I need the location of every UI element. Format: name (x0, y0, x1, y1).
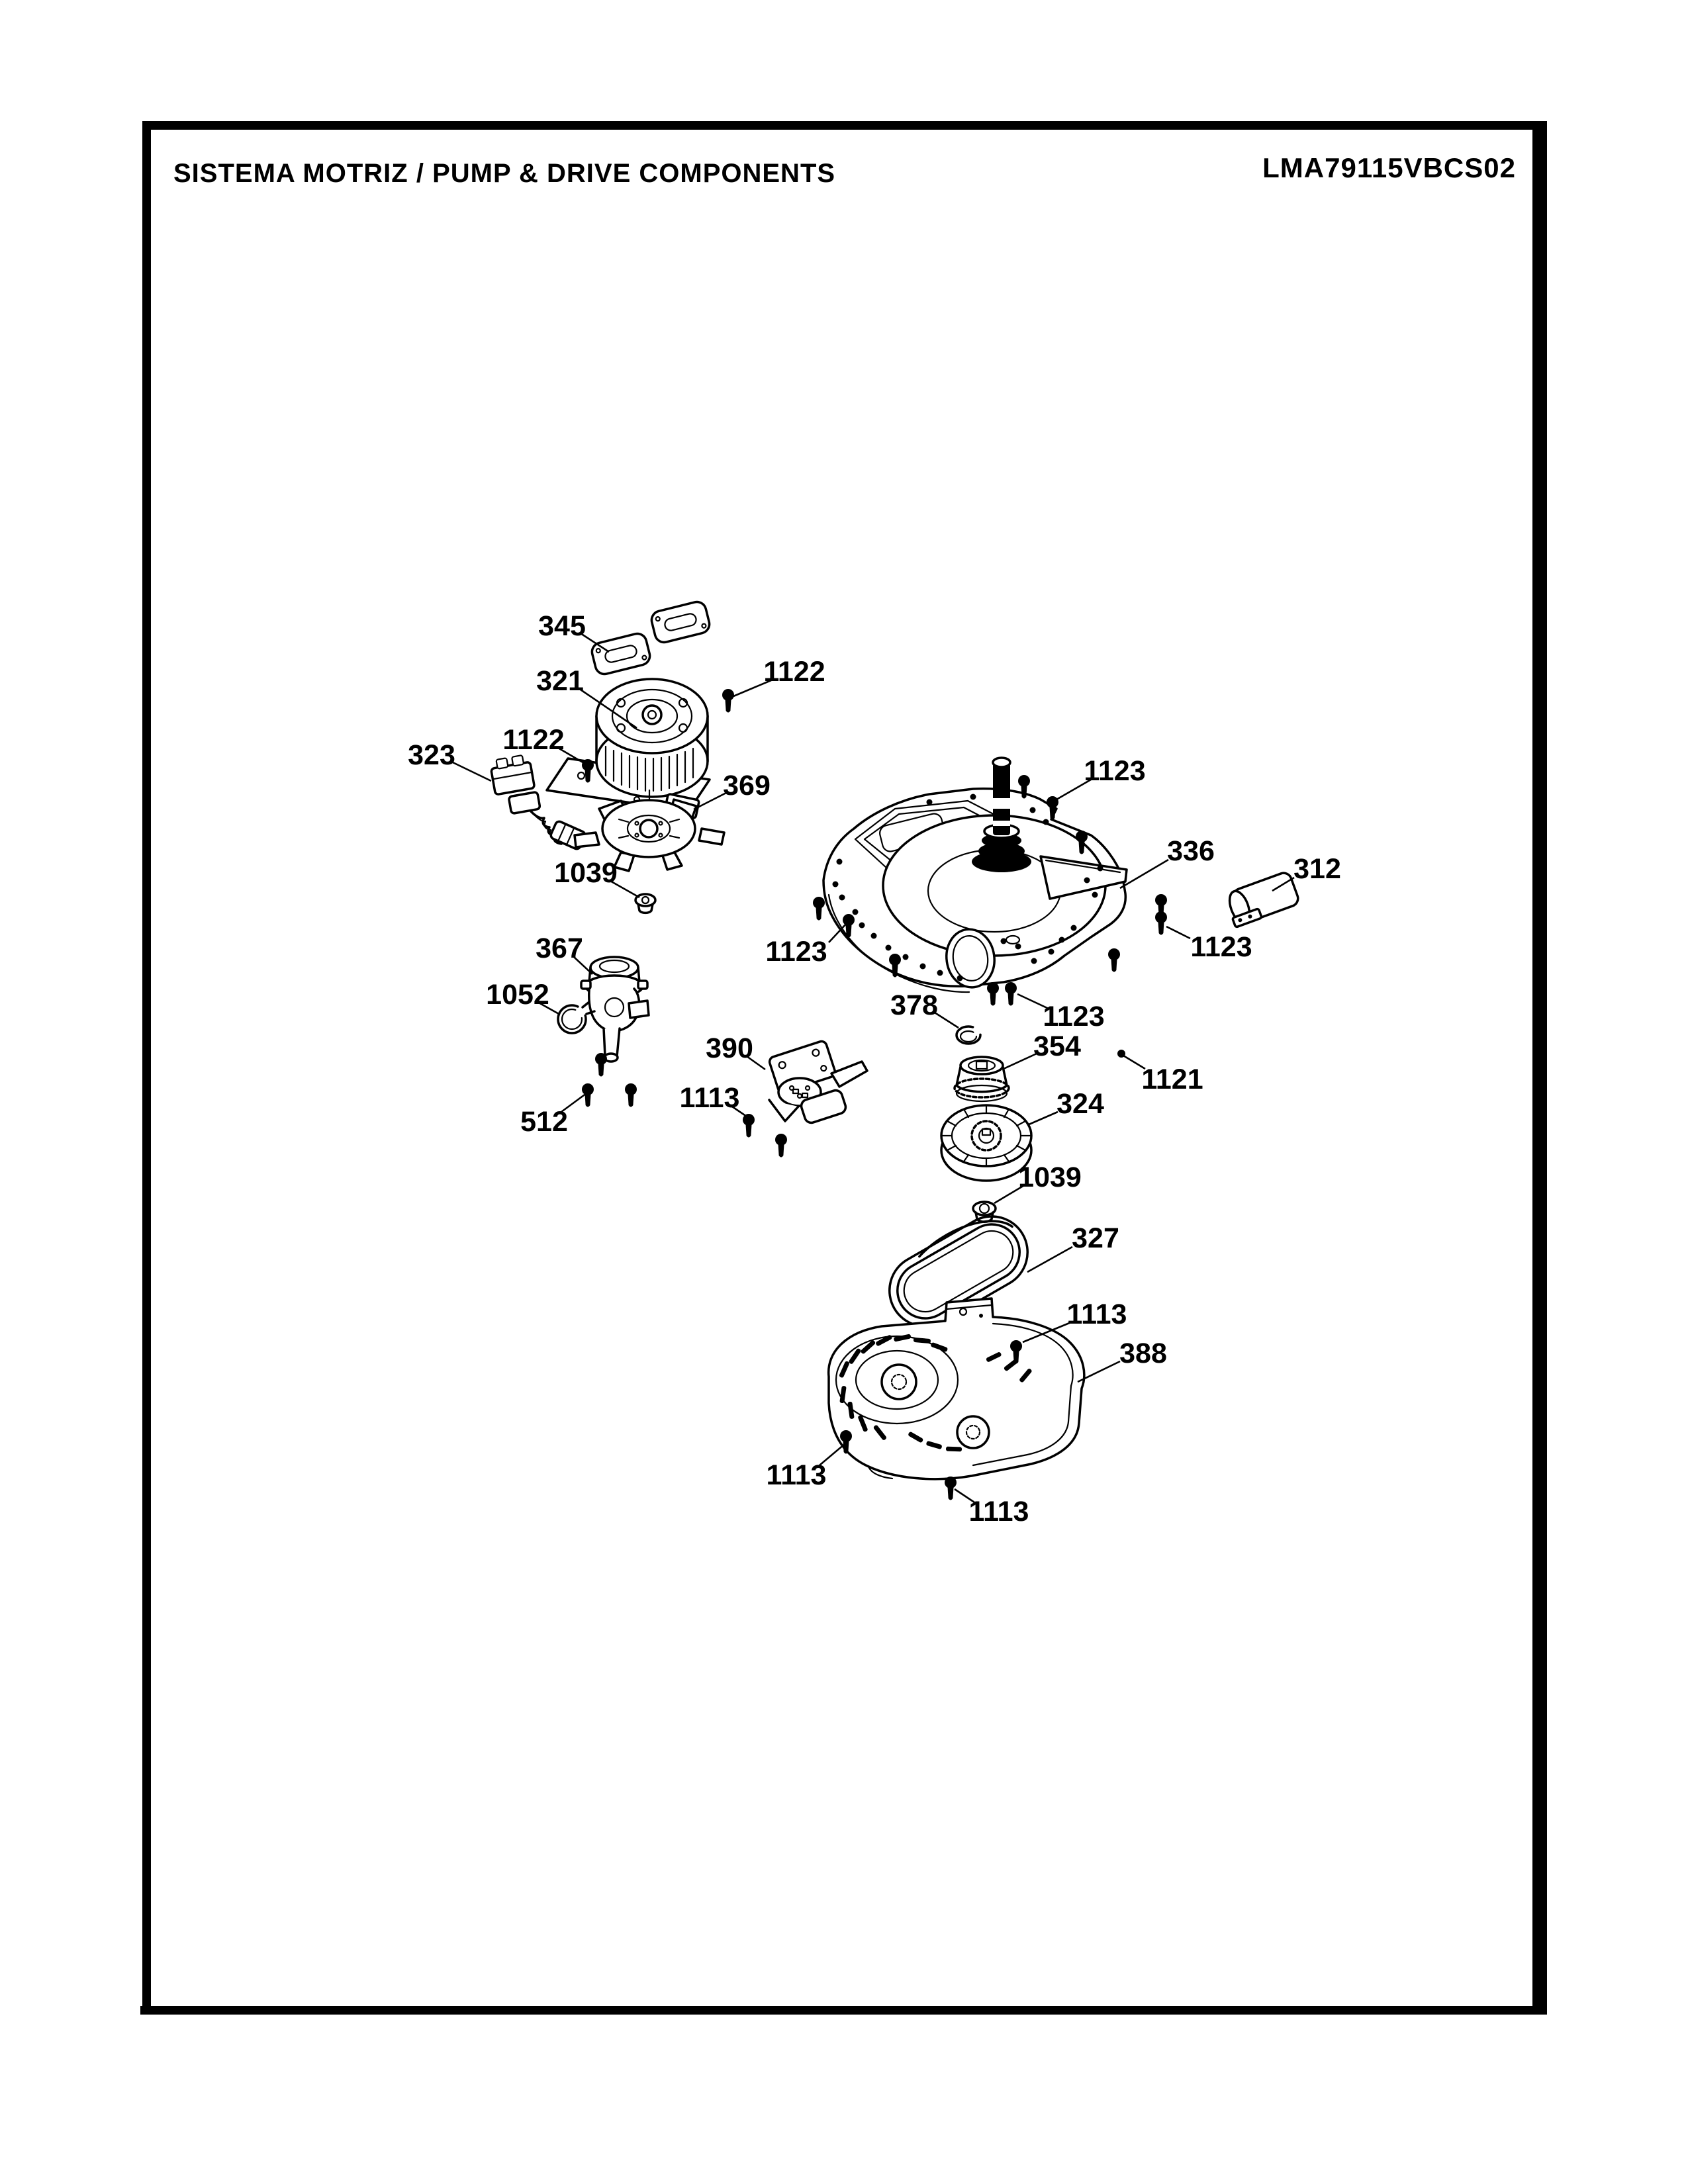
capacitor (1224, 871, 1301, 927)
screw-icon (1005, 982, 1017, 1006)
callout-1052: 1052 (486, 979, 549, 1011)
callout-1113-shifter: 1113 (680, 1082, 740, 1114)
callout-388: 388 (1119, 1338, 1167, 1369)
screw-icon (775, 1134, 787, 1158)
screw-icon (722, 689, 734, 713)
drive-motor (547, 679, 710, 819)
page-title: SISTEMA MOTRIZ / PUMP & DRIVE COMPONENTS (173, 159, 835, 188)
callout-1122-right: 1122 (763, 656, 825, 688)
shifter-arm (831, 1062, 867, 1087)
callout-323: 323 (408, 739, 455, 771)
motor-gasket-pair (590, 600, 711, 676)
screw-icon (595, 1053, 607, 1077)
callout-1113-bottom-left: 1113 (767, 1459, 827, 1491)
diagram-canvas: SISTEMA MOTRIZ / PUMP & DRIVE COMPONENTS… (0, 0, 1688, 2184)
callout-1122-left: 1122 (502, 724, 564, 756)
screw-icon (987, 982, 999, 1006)
callout-367: 367 (536, 933, 583, 964)
callout-1121: 1121 (1141, 1064, 1203, 1095)
model-number: LMA79115VBCS02 (1262, 152, 1516, 183)
transmission-platform (823, 758, 1127, 992)
screw-icon (625, 1083, 637, 1107)
callout-345: 345 (538, 610, 586, 642)
bottom-cover (829, 1298, 1084, 1479)
pump-outlet (629, 1001, 649, 1018)
callout-1113-bottom-right: 1113 (969, 1496, 1029, 1527)
screw-icon (1155, 911, 1167, 935)
callout-1123-top: 1123 (1084, 755, 1145, 787)
callout-1113-belt: 1113 (1067, 1298, 1127, 1330)
callout-336: 336 (1167, 835, 1215, 867)
callout-512: 512 (520, 1106, 568, 1138)
callout-327: 327 (1072, 1222, 1119, 1254)
callout-1039-lower: 1039 (1018, 1161, 1082, 1193)
parts-diagram-page: SISTEMA MOTRIZ / PUMP & DRIVE COMPONENTS… (0, 0, 1688, 2184)
pump-tube (604, 1028, 620, 1056)
callout-378: 378 (890, 989, 938, 1021)
callout-312: 312 (1293, 853, 1341, 885)
screw-icon (945, 1477, 957, 1500)
shifter-assembly (769, 1040, 867, 1124)
snap-ring (957, 1026, 980, 1044)
callout-1123-bottom: 1123 (1043, 1001, 1104, 1032)
screw-icon (813, 897, 825, 921)
callout-1123-left: 1123 (765, 936, 827, 968)
callout-390: 390 (706, 1032, 753, 1064)
callout-354: 354 (1033, 1030, 1081, 1062)
screw-icon (1108, 948, 1120, 972)
callout-321: 321 (536, 665, 584, 697)
callout-369: 369 (723, 770, 771, 801)
callout-1039-upper: 1039 (554, 857, 618, 889)
clutch-gear (955, 1057, 1009, 1101)
callout-324: 324 (1056, 1088, 1104, 1120)
callout-1123-right: 1123 (1190, 931, 1252, 963)
